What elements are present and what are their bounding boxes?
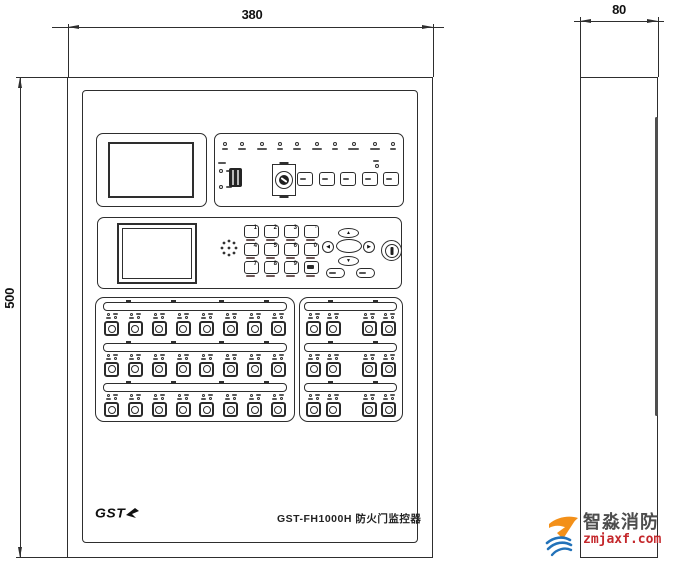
- switch-row: [300, 383, 402, 417]
- power-button: [381, 240, 402, 261]
- keypad-module: 123·4560789 ▲ ◀ ▶ ▼: [97, 217, 402, 289]
- side-view-cabinet: [580, 77, 658, 558]
- arrow-right-icon: ▶: [367, 244, 371, 250]
- keypad-key: ·: [304, 225, 319, 238]
- arrow-left-button: ◀: [322, 241, 334, 253]
- door-switch-unit: [247, 354, 262, 377]
- speaker-grille: [218, 237, 240, 259]
- function-button-row: [297, 172, 399, 186]
- function-button: [383, 172, 399, 186]
- door-switch-unit: [199, 394, 214, 417]
- door-switch-button: [381, 402, 396, 417]
- door-switch-button: [362, 402, 377, 417]
- dimension-line: [20, 77, 21, 558]
- door-switch-button: [152, 402, 167, 417]
- door-switch-unit: [306, 313, 321, 336]
- door-switch-unit: [223, 313, 238, 336]
- door-switch-button: [362, 321, 377, 336]
- door-switch-button: [176, 402, 191, 417]
- door-switch-button: [306, 321, 321, 336]
- door-switch-button: [362, 362, 377, 377]
- label-strip: [304, 343, 397, 352]
- keypad-key: 0: [304, 243, 319, 256]
- door-switch-button: [247, 402, 262, 417]
- status-led: [370, 142, 380, 150]
- function-key-left: [326, 268, 345, 278]
- function-button: [319, 172, 335, 186]
- door-switch-button: [326, 402, 341, 417]
- extension-line: [433, 24, 434, 77]
- door-switch-button: [381, 362, 396, 377]
- door-switch-unit: [128, 313, 143, 336]
- door-switch-button: [223, 362, 238, 377]
- door-switch-button: [381, 321, 396, 336]
- arrow-down-button: ▼: [338, 256, 359, 266]
- door-switch-unit: [306, 354, 321, 377]
- extension-line: [16, 77, 68, 78]
- keypad-key: 3: [284, 225, 299, 238]
- door-switch-unit: [326, 394, 341, 417]
- door-switch-unit: [223, 394, 238, 417]
- door-switch-unit: [326, 354, 341, 377]
- arrow-up-icon: ▲: [346, 230, 351, 236]
- door-switch-unit: [362, 313, 377, 336]
- keypad-key: 8: [264, 261, 279, 274]
- door-switch-unit: [176, 313, 191, 336]
- keypad-key: 7: [244, 261, 259, 274]
- door-switch-unit: [362, 354, 377, 377]
- status-led: [348, 142, 359, 150]
- dimension-line: [52, 27, 444, 28]
- side-hinge-bar: [655, 117, 658, 416]
- model-label: GST-FH1000H 防火门监控器: [277, 511, 421, 526]
- door-switch-unit: [271, 313, 286, 336]
- watermark-logo: [545, 513, 581, 557]
- door-switch-button: [199, 362, 214, 377]
- keypad-key: 2: [264, 225, 279, 238]
- door-switch-button: [326, 321, 341, 336]
- door-switch-button: [271, 402, 286, 417]
- door-switch-button: [223, 321, 238, 336]
- door-switch-unit: [326, 313, 341, 336]
- extension-line: [68, 24, 69, 77]
- power-icon: [390, 247, 393, 255]
- door-switch-panel-right: [299, 297, 403, 422]
- enter-button: [336, 239, 362, 253]
- door-switch-button: [271, 321, 286, 336]
- door-switch-unit: [199, 313, 214, 336]
- door-switch-button: [176, 362, 191, 377]
- lcd-screen: [122, 228, 192, 279]
- door-switch-unit: [306, 394, 321, 417]
- function-button: [362, 172, 378, 186]
- door-switch-unit: [104, 354, 119, 377]
- label-strip: [103, 302, 287, 311]
- watermark-site: zmjaxf.com: [583, 533, 661, 546]
- extension-line: [580, 17, 581, 77]
- door-switch-button: [223, 402, 238, 417]
- label-strip: [103, 383, 287, 392]
- door-switch-button: [104, 402, 119, 417]
- status-led: [257, 142, 267, 150]
- brand-bird-icon: [126, 508, 139, 519]
- door-switch-unit: [104, 394, 119, 417]
- door-switch-button: [326, 362, 341, 377]
- numeric-keypad: 123·4560789: [244, 225, 319, 274]
- status-led: [222, 142, 228, 150]
- door-switch-button: [306, 402, 321, 417]
- aux-led: [219, 169, 223, 173]
- main-display-module: [96, 133, 207, 207]
- door-switch-unit: [128, 354, 143, 377]
- door-switch-button: [128, 362, 143, 377]
- door-switch-unit: [128, 394, 143, 417]
- door-switch-unit: [247, 394, 262, 417]
- dimension-depth-label: 80: [599, 2, 639, 17]
- door-switch-button: [152, 321, 167, 336]
- switch-row: [96, 343, 294, 377]
- arrow-left-icon: ◀: [326, 244, 330, 250]
- door-switch-unit: [271, 394, 286, 417]
- extension-line: [658, 17, 659, 77]
- status-led: [238, 142, 246, 150]
- brand-logo-text: GST: [95, 506, 125, 520]
- arrowhead-icon: [580, 19, 591, 23]
- door-switch-button: [199, 321, 214, 336]
- label-smudge: [373, 160, 379, 162]
- status-led: [390, 142, 396, 150]
- door-switch-unit: [381, 354, 396, 377]
- indicator-panel: [214, 133, 404, 207]
- function-button: [340, 172, 356, 186]
- keypad-key: 1: [244, 225, 259, 238]
- door-switch-unit: [152, 354, 167, 377]
- door-switch-unit: [152, 394, 167, 417]
- arrow-up-button: ▲: [338, 228, 359, 238]
- switch-row: [300, 302, 402, 336]
- label-strip: [103, 343, 287, 352]
- door-switch-unit: [247, 313, 262, 336]
- arrowhead-icon: [18, 77, 22, 88]
- main-display-screen: [108, 142, 194, 198]
- dimension-width-label: 380: [228, 7, 276, 22]
- door-switch-button: [199, 402, 214, 417]
- status-led: [312, 142, 322, 150]
- door-switch-button: [152, 362, 167, 377]
- keypad-key: [304, 261, 319, 274]
- label-strip: [304, 302, 397, 311]
- door-switch-panel-left: [95, 297, 295, 422]
- door-switch-unit: [381, 394, 396, 417]
- arrowhead-icon: [422, 25, 433, 29]
- door-switch-unit: [176, 394, 191, 417]
- switch-row: [300, 343, 402, 377]
- function-led: [375, 164, 379, 168]
- function-button: [297, 172, 313, 186]
- key-switch: [272, 164, 296, 196]
- door-switch-unit: [104, 313, 119, 336]
- door-switch-unit: [362, 394, 377, 417]
- door-switch-button: [104, 321, 119, 336]
- door-switch-button: [271, 362, 286, 377]
- door-switch-unit: [381, 313, 396, 336]
- keypad-key: 9: [284, 261, 299, 274]
- dip-connector: [229, 168, 242, 187]
- arrow-down-icon: ▼: [346, 258, 351, 264]
- door-switch-unit: [271, 354, 286, 377]
- brand-logo: GST: [95, 505, 139, 521]
- door-switch-button: [176, 321, 191, 336]
- keypad-key: 5: [264, 243, 279, 256]
- label-smudge: [218, 162, 226, 164]
- indicator-led-row: [222, 142, 396, 150]
- technical-drawing: 380 500 80: [0, 0, 685, 578]
- keypad-key: 4: [244, 243, 259, 256]
- door-switch-button: [128, 321, 143, 336]
- lcd-screen-frame: [117, 223, 197, 284]
- door-switch-button: [247, 362, 262, 377]
- status-led: [277, 142, 283, 150]
- door-switch-button: [104, 362, 119, 377]
- keypad-key: 6: [284, 243, 299, 256]
- watermark: 智淼消防 zmjaxf.com: [545, 513, 661, 557]
- label-strip: [304, 383, 397, 392]
- door-switch-unit: [223, 354, 238, 377]
- arrowhead-icon: [647, 19, 658, 23]
- dimension-height-label: 500: [2, 288, 17, 309]
- door-switch-button: [306, 362, 321, 377]
- arrowhead-icon: [68, 25, 79, 29]
- arrow-right-button: ▶: [363, 241, 375, 253]
- switch-row: [96, 383, 294, 417]
- door-switch-unit: [199, 354, 214, 377]
- watermark-brand: 智淼消防: [583, 513, 661, 531]
- status-led: [293, 142, 301, 150]
- switch-row: [96, 302, 294, 336]
- function-key-right: [356, 268, 375, 278]
- door-switch-unit: [176, 354, 191, 377]
- door-switch-button: [247, 321, 262, 336]
- door-switch-button: [128, 402, 143, 417]
- aux-led: [219, 185, 223, 189]
- extension-line: [16, 557, 68, 558]
- status-led: [332, 142, 338, 150]
- door-switch-unit: [152, 313, 167, 336]
